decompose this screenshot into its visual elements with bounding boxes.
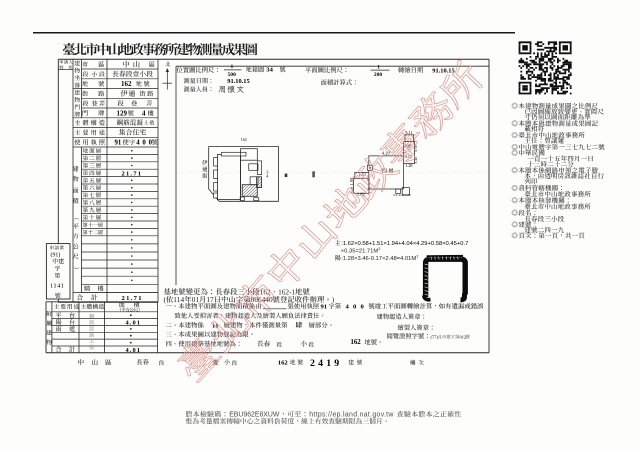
svg-text:×0.35=21.71M: ×0.35=21.71M [341,249,379,255]
svg-text:162-1: 162-1 [278,287,295,296]
svg-text:01: 01 [192,295,200,304]
svg-text:0: 0 [142,139,146,146]
svg-text:https://ep.land.nat.gov.tw: https://ep.land.nat.gov.tw [309,412,394,419]
svg-text:1: 1 [231,64,234,70]
svg-text:17: 17 [206,295,214,304]
svg-text:1.11: 1.11 [406,130,413,135]
svg-text:1.28: 1.28 [405,163,412,168]
svg-text:0.45: 0.45 [399,193,405,197]
svg-text:(91): (91) [51,252,61,259]
svg-text:91.10.15: 91.10.15 [432,67,454,74]
svg-text:1: 1 [377,64,380,70]
svg-text:0.35: 0.35 [405,193,411,197]
svg-text:1141: 1141 [50,283,64,290]
svg-text:(77): (77) [431,334,439,339]
svg-text:500: 500 [228,72,237,78]
svg-text:91: 91 [115,139,122,146]
svg-text:2419: 2419 [310,358,342,369]
svg-text:129: 129 [117,109,128,117]
svg-text:4.01: 4.01 [126,319,142,326]
svg-text:0.58: 0.58 [414,145,418,152]
svg-text:91: 91 [321,303,328,310]
svg-text:162: 162 [241,137,247,142]
svg-text:012: 012 [460,334,467,339]
svg-text:200: 200 [374,72,383,78]
svg-text:2: 2 [379,247,381,251]
svg-text:21.71: 21.71 [122,295,143,302]
svg-text:162: 162 [351,339,362,346]
svg-text:162: 162 [278,359,289,366]
svg-text:21.71: 21.71 [122,170,143,177]
svg-text:0: 0 [149,139,153,146]
svg-text:91.10.15: 91.10.15 [227,78,249,85]
svg-text::1.62×0.58+1.51×1.94+4.04×4.29: :1.62×0.58+1.51×1.94+4.04×4.29+0.58×0.45… [341,241,468,247]
svg-text:0.9: 0.9 [393,193,397,197]
svg-text:2: 2 [417,254,419,258]
svg-text:34: 34 [266,66,273,73]
svg-text:EBU962E8XUW: EBU962E8XUW [229,412,280,419]
svg-text:4: 4 [136,139,140,146]
svg-text:162: 162 [121,80,132,88]
svg-text:4.01: 4.01 [126,347,142,354]
svg-text:4.29: 4.29 [382,151,391,156]
svg-text:4: 4 [142,109,146,117]
svg-text:114: 114 [173,295,184,304]
svg-text::1.28×3.46-0.17×2.48=4.01M: :1.28×3.46-0.17×2.48=4.01M [341,256,416,262]
